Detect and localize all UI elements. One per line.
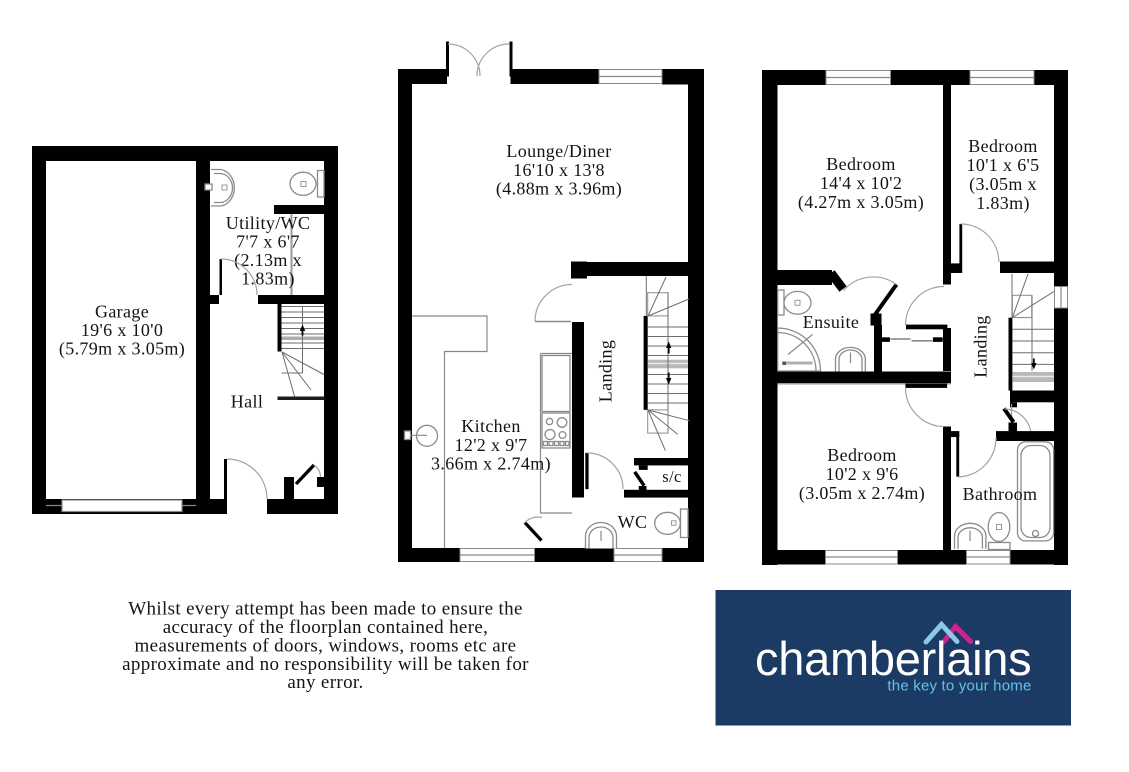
svg-text:10'2 x 9'6: 10'2 x 9'6 [826,464,899,484]
svg-text:Garage: Garage [95,302,149,322]
svg-text:19'6 x 10'0: 19'6 x 10'0 [81,320,163,340]
svg-text:the key to your home: the key to your home [887,678,1031,695]
svg-text:s/c: s/c [662,467,681,486]
svg-text:Landing: Landing [596,340,616,402]
svg-text:(5.79m x 3.05m): (5.79m x 3.05m) [59,339,185,360]
svg-text:Bedroom: Bedroom [968,136,1037,156]
svg-text:Lounge/Diner: Lounge/Diner [506,141,611,161]
svg-text:Utility/WC: Utility/WC [226,213,311,233]
svg-text:16'10 x 13'8: 16'10 x 13'8 [513,160,605,180]
svg-text:Landing: Landing [971,315,991,377]
svg-text:(3.05m x: (3.05m x [969,174,1037,195]
svg-text:any error.: any error. [287,672,363,693]
svg-text:1.83m): 1.83m) [976,193,1030,214]
svg-text:(4.27m x 3.05m): (4.27m x 3.05m) [798,192,924,213]
svg-text:1.83m): 1.83m) [241,269,295,290]
svg-text:14'4 x 10'2: 14'4 x 10'2 [820,173,902,193]
svg-text:12'2 x 9'7: 12'2 x 9'7 [455,435,528,455]
svg-text:Bedroom: Bedroom [826,154,895,174]
svg-text:7'7 x 6'7: 7'7 x 6'7 [236,232,300,252]
svg-text:Ensuite: Ensuite [803,312,859,332]
svg-text:Kitchen: Kitchen [461,416,520,436]
svg-text:WC: WC [618,512,648,532]
svg-text:(3.05m x 2.74m): (3.05m x 2.74m) [799,483,925,504]
svg-text:(4.88m x 3.96m): (4.88m x 3.96m) [496,179,622,200]
svg-text:10'1 x 6'5: 10'1 x 6'5 [967,155,1040,175]
svg-text:3.66m x 2.74m): 3.66m x 2.74m) [431,454,551,475]
svg-text:Bathroom: Bathroom [963,484,1038,504]
svg-text:Hall: Hall [231,392,263,412]
svg-text:Bedroom: Bedroom [827,445,896,465]
